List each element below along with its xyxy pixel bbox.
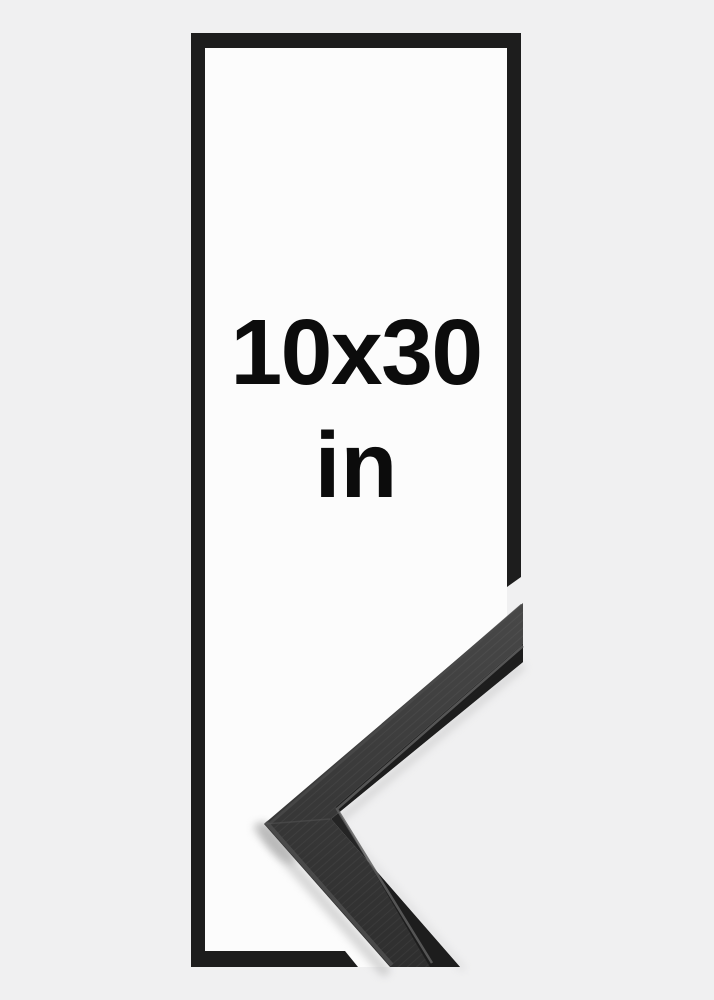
frame-size-diagram: [0, 0, 714, 1000]
frame-product-image: 10x30 in: [0, 0, 714, 1000]
